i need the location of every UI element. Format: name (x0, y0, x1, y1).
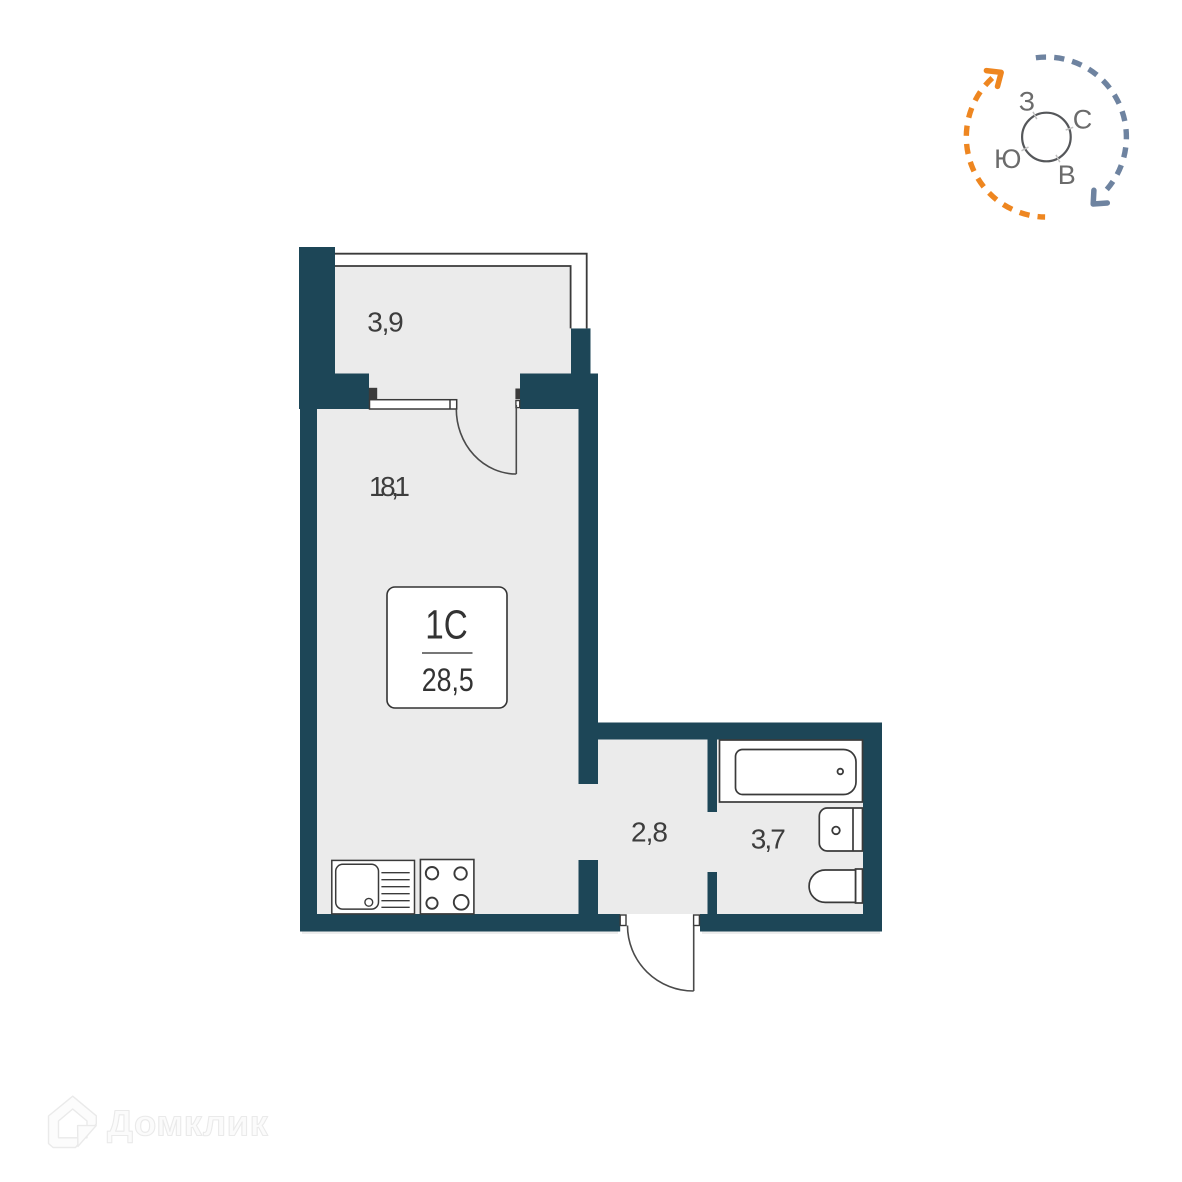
svg-text:2,8: 2,8 (631, 816, 668, 847)
svg-text:28,5: 28,5 (422, 662, 474, 698)
svg-text:З: З (1019, 87, 1035, 117)
svg-text:Домклик: Домклик (107, 1103, 269, 1144)
svg-text:1С: 1С (425, 601, 468, 647)
svg-text:18,1: 18,1 (369, 471, 410, 502)
svg-text:3,7: 3,7 (751, 824, 786, 855)
svg-text:В: В (1058, 160, 1076, 190)
svg-text:3,9: 3,9 (367, 307, 404, 338)
svg-text:С: С (1073, 104, 1093, 134)
svg-text:Ю: Ю (994, 144, 1021, 174)
